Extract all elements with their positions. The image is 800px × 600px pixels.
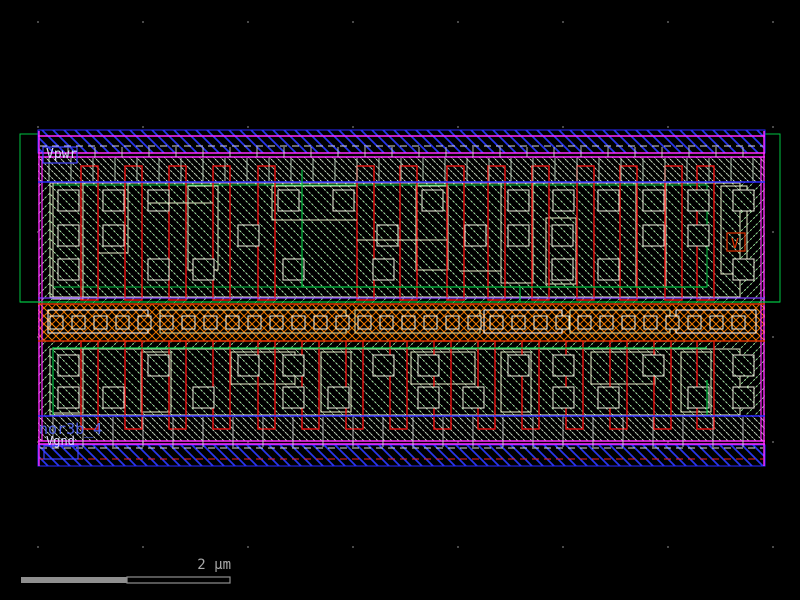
scalebar-filled-segment (21, 577, 127, 583)
contact (328, 387, 349, 408)
li-band-bottom (38, 415, 765, 441)
contact (465, 225, 486, 246)
tap-contact (512, 316, 525, 329)
contact (193, 387, 214, 408)
contact (103, 190, 124, 211)
tap-contact (446, 316, 459, 329)
tap-contact (292, 316, 305, 329)
grid-dot (457, 546, 459, 548)
scalebar-outline-segment (127, 577, 230, 583)
li-band-top (38, 157, 765, 182)
layout-editor-window: Vpwr nor3b_4 Vgnd V 2 µm (0, 0, 800, 600)
contact (283, 355, 304, 376)
tap-contact (666, 316, 679, 329)
layout-canvas[interactable]: Vpwr nor3b_4 Vgnd V 2 µm (0, 0, 800, 600)
tap-contact (402, 316, 415, 329)
contact (508, 225, 529, 246)
grid-dot (352, 126, 354, 128)
contact (148, 190, 169, 211)
tap-contact (226, 316, 239, 329)
contact (333, 190, 354, 211)
grid-dot (142, 546, 144, 548)
tap-contact (270, 316, 283, 329)
contact (688, 190, 709, 211)
grid-dot (772, 336, 774, 338)
grid-dot (667, 546, 669, 548)
contact (373, 355, 394, 376)
grid-dot (37, 21, 39, 23)
contact (598, 190, 619, 211)
scalebar-label: 2 µm (197, 557, 231, 573)
contact (103, 387, 124, 408)
tap-contact (578, 316, 591, 329)
tap-contact (138, 316, 151, 329)
via-marker-label: V (731, 237, 739, 252)
contact (58, 355, 79, 376)
grid-dot (772, 231, 774, 233)
contact (508, 190, 529, 211)
tap-contact (644, 316, 657, 329)
grid-dot (457, 21, 459, 23)
grid-dot (562, 21, 564, 23)
metal1-rail-top (38, 130, 765, 153)
tap-contact (732, 316, 745, 329)
contact (733, 259, 754, 280)
tap-contact (248, 316, 261, 329)
tap-contact (468, 316, 481, 329)
tap-contact (50, 316, 63, 329)
contact (733, 387, 754, 408)
grid-dot (37, 546, 39, 548)
tap-contact (600, 316, 613, 329)
tap-contact (556, 316, 569, 329)
layout-shapes (20, 130, 780, 466)
contact (103, 225, 124, 246)
contact (733, 190, 754, 211)
tap-contact (116, 316, 129, 329)
grid-dot (562, 126, 564, 128)
contact (58, 225, 79, 246)
grid-dot (772, 546, 774, 548)
contact (508, 355, 529, 376)
grid-dot (772, 126, 774, 128)
tap-contact (336, 316, 349, 329)
tap-contact (94, 316, 107, 329)
contact (373, 259, 394, 280)
tap-contact (358, 316, 371, 329)
tap-contact (160, 316, 173, 329)
contact (418, 355, 439, 376)
scalebar: 2 µm (21, 557, 231, 583)
contact (688, 387, 709, 408)
grid-dot (142, 126, 144, 128)
contact (733, 355, 754, 376)
grid-dot (352, 21, 354, 23)
grid-dot (247, 126, 249, 128)
contact (278, 190, 299, 211)
tap-contact (380, 316, 393, 329)
contact (238, 225, 259, 246)
vpwr-port-label: Vpwr (46, 147, 77, 162)
contact (58, 259, 79, 280)
grid-dot (37, 126, 39, 128)
contact (463, 387, 484, 408)
grid-dot (772, 21, 774, 23)
grid-dot (142, 21, 144, 23)
contact (598, 259, 619, 280)
contact (422, 190, 443, 211)
tap-contact (72, 316, 85, 329)
grid-dot (667, 21, 669, 23)
contact (553, 355, 574, 376)
contact (643, 355, 664, 376)
contact (552, 259, 573, 280)
grid-dot (667, 126, 669, 128)
contact (377, 225, 398, 246)
tap-contact (204, 316, 217, 329)
tap-contact (424, 316, 437, 329)
grid-dot (247, 546, 249, 548)
contact (193, 259, 214, 280)
contact (688, 225, 709, 246)
contact (553, 190, 574, 211)
contact (148, 259, 169, 280)
contact (598, 387, 619, 408)
tap-contact (622, 316, 635, 329)
grid-dot (457, 126, 459, 128)
vgnd-port-label: Vgnd (46, 434, 75, 448)
tap-contact (710, 316, 723, 329)
grid-dot (562, 546, 564, 548)
contact (553, 387, 574, 408)
contact (58, 190, 79, 211)
tap-contact (314, 316, 327, 329)
tap-contact (534, 316, 547, 329)
grid-dot (352, 546, 354, 548)
contact (643, 225, 664, 246)
grid-dot (772, 441, 774, 443)
contact (643, 190, 664, 211)
tap-contact (688, 316, 701, 329)
contact (238, 355, 259, 376)
contact (283, 387, 304, 408)
contact (58, 387, 79, 408)
contact (148, 355, 169, 376)
contact (418, 387, 439, 408)
tap-contact (182, 316, 195, 329)
grid-dot (247, 21, 249, 23)
contact (552, 225, 573, 246)
contact (283, 259, 304, 280)
tap-contact (490, 316, 503, 329)
